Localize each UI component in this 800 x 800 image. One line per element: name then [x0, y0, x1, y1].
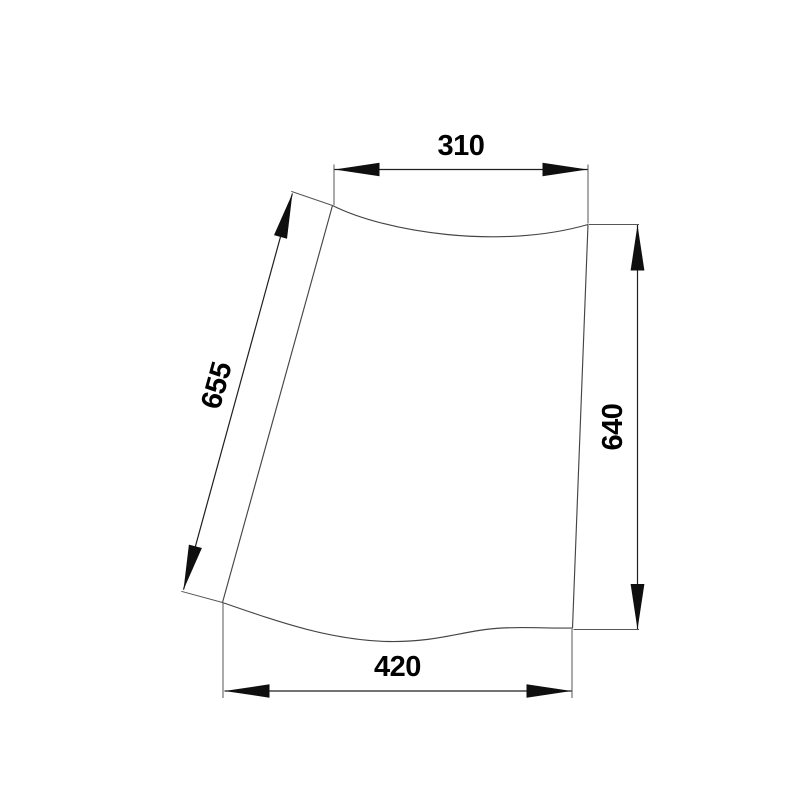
arrowhead-right: [543, 163, 588, 176]
dimension-value-bottom-width: 420: [374, 651, 421, 683]
dimension-value-right-height: 640: [597, 404, 629, 451]
glass-panel-dimension-drawing: 310 655 640 420: [0, 0, 800, 800]
arrowhead-bottom: [631, 584, 645, 630]
dimension-right-height: 640: [574, 225, 645, 630]
glass-panel-outline: [223, 206, 589, 642]
extension-line-top: [291, 191, 332, 205]
arrowhead-top: [274, 194, 292, 239]
arrowhead-top: [631, 225, 645, 271]
arrowhead-right: [527, 684, 572, 697]
arrowhead-left: [225, 684, 270, 697]
dimension-value-left-edge-length: 655: [195, 358, 238, 412]
dimension-value-top-width: 310: [438, 130, 485, 162]
dimension-left-edge-length: 655: [181, 191, 332, 602]
dimension-bottom-width: 420: [223, 603, 572, 698]
technical-drawing-canvas: 310 655 640 420: [0, 0, 800, 800]
arrowhead-bottom: [184, 545, 202, 590]
dimension-top-width: 310: [334, 130, 588, 224]
extension-line-bottom: [181, 591, 222, 602]
arrowhead-left: [335, 163, 380, 176]
